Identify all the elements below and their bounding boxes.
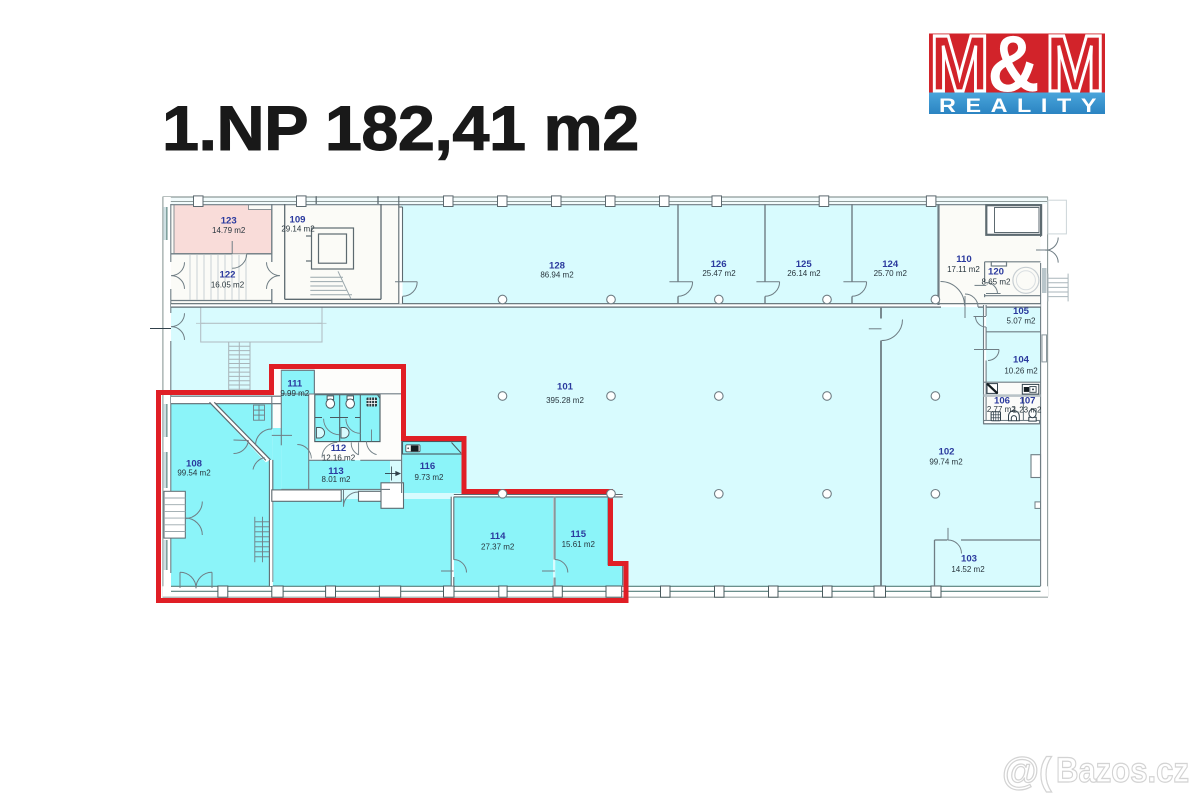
svg-text:14.52 m2: 14.52 m2	[951, 565, 985, 574]
svg-text:123: 123	[221, 216, 237, 227]
svg-text:17.11 m2: 17.11 m2	[947, 265, 980, 274]
svg-text:104: 104	[1013, 355, 1030, 366]
svg-text:9.73 m2: 9.73 m2	[415, 473, 444, 482]
svg-text:8.01 m2: 8.01 m2	[322, 475, 351, 484]
svg-text:112: 112	[331, 443, 346, 454]
svg-text:86.94 m2: 86.94 m2	[540, 271, 574, 280]
svg-text:120: 120	[988, 267, 1004, 278]
svg-text:101: 101	[557, 382, 574, 393]
svg-text:29.14 m2: 29.14 m2	[281, 225, 315, 234]
svg-text:REALITY: REALITY	[939, 95, 1106, 117]
svg-text:110: 110	[956, 254, 971, 265]
svg-text:105: 105	[1013, 306, 1030, 317]
svg-text:103: 103	[961, 554, 977, 565]
svg-text:10.26 m2: 10.26 m2	[1004, 367, 1038, 376]
svg-text:14.79 m2: 14.79 m2	[212, 226, 246, 235]
svg-text:111: 111	[287, 379, 303, 390]
svg-text:12.16 m2: 12.16 m2	[322, 454, 356, 463]
svg-text:15.61 m2: 15.61 m2	[562, 540, 596, 549]
svg-text:115: 115	[571, 529, 587, 540]
svg-text:99.54 m2: 99.54 m2	[177, 469, 211, 478]
svg-text:9.99 m2: 9.99 m2	[280, 389, 309, 398]
svg-text:1.NP 182,41 m2: 1.NP 182,41 m2	[162, 93, 639, 164]
svg-text:Bazos.cz: Bazos.cz	[1056, 751, 1189, 790]
svg-text:116: 116	[420, 461, 435, 472]
svg-text:25.70 m2: 25.70 m2	[874, 269, 908, 278]
svg-text:8.65 m2: 8.65 m2	[982, 278, 1011, 287]
svg-text:27.37 m2: 27.37 m2	[481, 543, 515, 552]
svg-text:25.47 m2: 25.47 m2	[702, 269, 736, 278]
svg-text:26.14 m2: 26.14 m2	[787, 269, 821, 278]
svg-text:102: 102	[938, 447, 954, 458]
svg-text:1.23 m2: 1.23 m2	[1013, 406, 1042, 415]
svg-text:122: 122	[219, 270, 235, 281]
svg-text:@(: @(	[1002, 751, 1052, 793]
svg-text:5.07 m2: 5.07 m2	[1007, 317, 1036, 326]
svg-text:114: 114	[490, 531, 506, 542]
svg-text:16.05 m2: 16.05 m2	[211, 281, 245, 290]
svg-text:395.28 m2: 395.28 m2	[546, 396, 584, 405]
svg-text:99.74 m2: 99.74 m2	[929, 458, 963, 467]
